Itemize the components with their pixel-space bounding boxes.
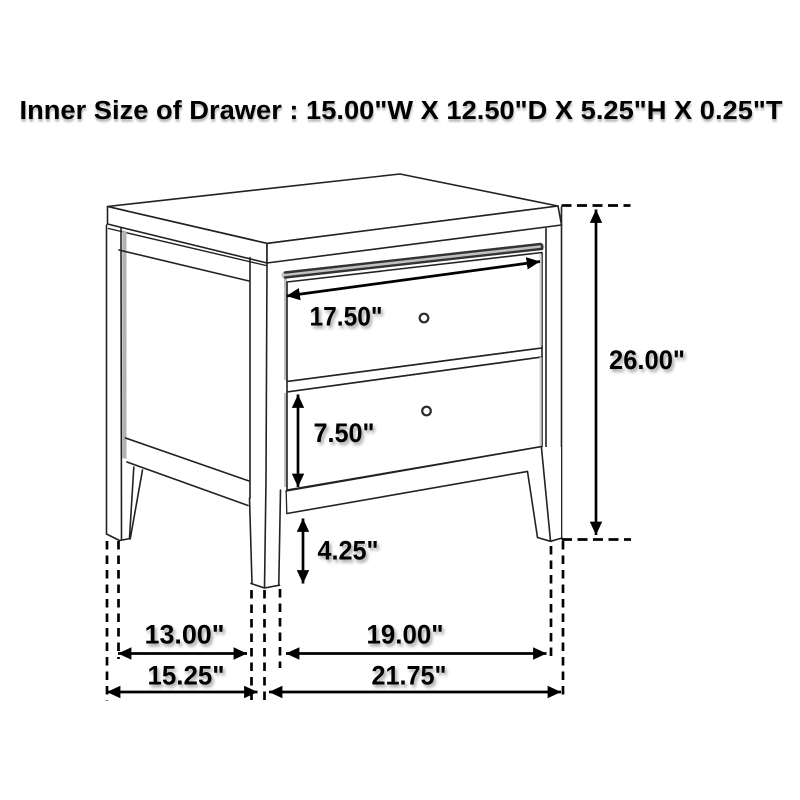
svg-text:19.00": 19.00" [367, 620, 444, 650]
svg-text:7.50": 7.50" [314, 418, 375, 448]
svg-text:21.75": 21.75" [372, 661, 447, 691]
svg-text:26.00": 26.00" [609, 345, 685, 375]
svg-text:15.25": 15.25" [148, 661, 225, 691]
svg-text:Inner Size of Drawer : 15.00"W: Inner Size of Drawer : 15.00"W X 12.50"D… [20, 97, 783, 125]
svg-text:4.25": 4.25" [318, 536, 379, 566]
svg-text:17.50": 17.50" [310, 302, 383, 332]
svg-text:13.00": 13.00" [145, 620, 225, 650]
